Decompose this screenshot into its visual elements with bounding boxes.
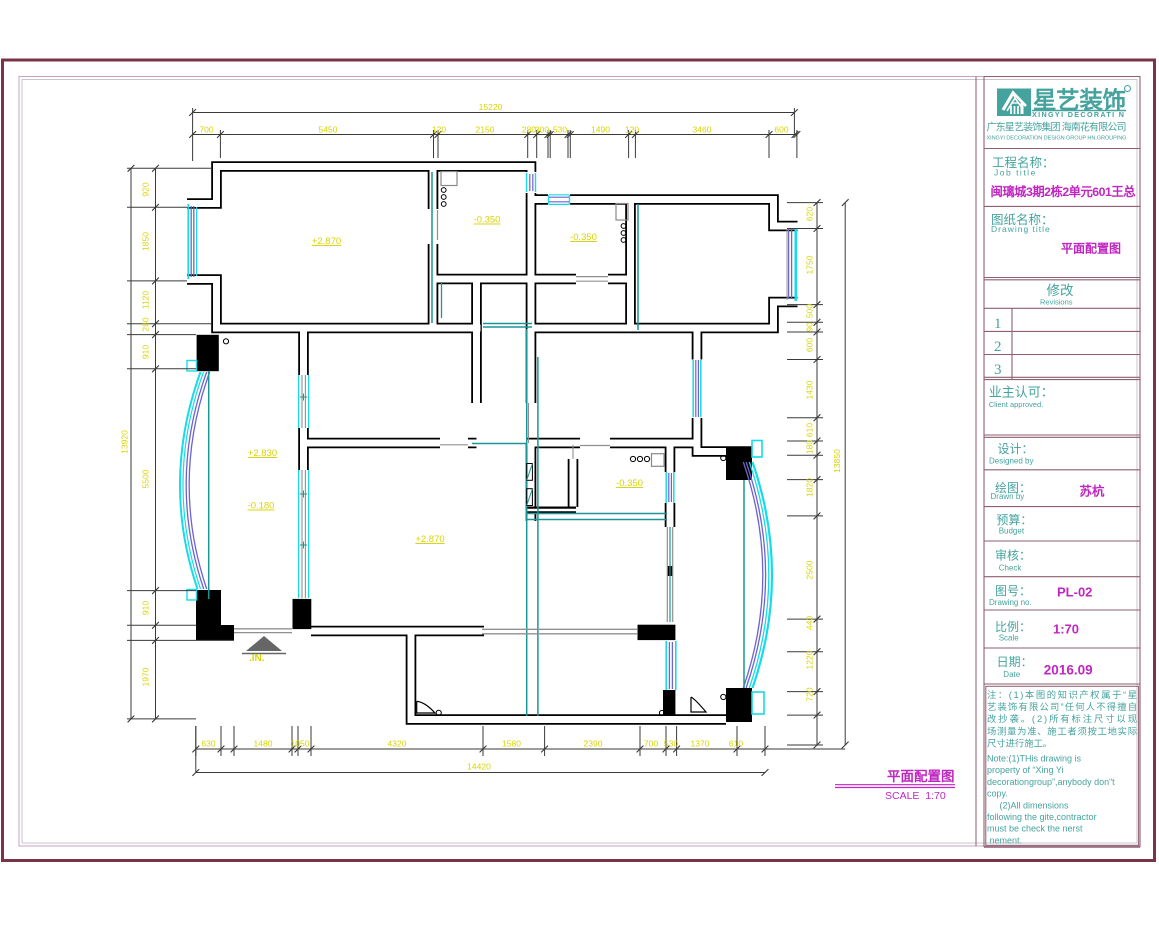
svg-text:13850: 13850 [832,449,842,473]
svg-text:审核：: 审核： [995,548,1031,563]
svg-text:广东星艺装饰集团 海南花有限公司: 广东星艺装饰集团 海南花有限公司 [987,121,1127,134]
svg-text:property of “Xing Yi: property of “Xing Yi [987,765,1064,775]
svg-text:5500: 5500 [141,469,151,488]
svg-text:苏杭: 苏杭 [1080,484,1106,499]
svg-text:610: 610 [729,739,743,749]
svg-text:Designed by: Designed by [989,456,1033,465]
svg-text:1850: 1850 [141,232,151,251]
svg-text:Drawing no.: Drawing no. [989,598,1032,607]
svg-text:530: 530 [553,124,567,134]
svg-text:910: 910 [141,601,151,615]
svg-text:3: 3 [994,362,1002,378]
svg-text:2500: 2500 [805,560,815,579]
svg-text:Scale: Scale [999,634,1020,643]
svg-text:XINGYI DECORATION DESIGN GROUP: XINGYI DECORATION DESIGN GROUP HN.GROUPI… [987,136,1127,142]
svg-text:Budget: Budget [999,527,1025,536]
svg-text:1820: 1820 [805,478,815,497]
svg-text:1480: 1480 [254,739,273,749]
svg-text:Client approved.: Client approved. [989,400,1044,409]
svg-text:620: 620 [805,207,815,221]
svg-text:日期：: 日期： [997,655,1033,669]
svg-text:700: 700 [199,124,213,134]
svg-text:14420: 14420 [467,762,491,772]
svg-text:Revisions: Revisions [1040,297,1073,306]
svg-text:+2.870: +2.870 [415,534,444,545]
svg-text:610: 610 [805,423,815,437]
svg-text:120: 120 [625,124,639,134]
svg-text:预算：: 预算： [996,512,1032,527]
svg-text:630: 630 [201,739,215,749]
svg-text:1120: 1120 [141,291,151,310]
svg-text:注：(1)本图的知识产权属于“星: 注：(1)本图的知识产权属于“星 [987,689,1137,700]
svg-text:2016.09: 2016.09 [1044,663,1093,678]
svg-text:920: 920 [141,182,151,196]
svg-text:280: 280 [141,317,151,331]
svg-text:5450: 5450 [319,124,338,134]
svg-text:1220: 1220 [805,650,815,669]
svg-text:-0.180: -0.180 [248,501,275,512]
svg-text:平面配置图: 平面配置图 [1061,241,1121,256]
svg-text:1: 1 [994,316,1002,332]
svg-text:1750: 1750 [805,255,815,274]
svg-text:600: 600 [774,124,788,134]
svg-text:nement.: nement. [987,835,1022,845]
svg-text:440: 440 [805,616,815,630]
svg-text:场测量为准、施工者须按工地实际: 场测量为准、施工者须按工地实际 [987,725,1137,736]
svg-text:尺寸进行施工。: 尺寸进行施工。 [987,737,1052,748]
svg-text:3460: 3460 [693,124,712,134]
svg-text:-0.350: -0.350 [616,478,643,489]
svg-text:1430: 1430 [805,380,815,399]
svg-text:1580: 1580 [502,739,521,749]
svg-text:Drawing title: Drawing title [991,224,1051,234]
svg-text:.IN.: .IN. [249,653,265,664]
svg-text:must be check the nerst: must be check the nerst [987,824,1083,834]
svg-text:SCALE 1:70: SCALE 1:70 [885,790,946,802]
svg-text:copy.: copy. [987,789,1008,799]
svg-text:Job title: Job title [994,168,1037,178]
svg-text:改抄袭。(2)所有标注尺寸以现: 改抄袭。(2)所有标注尺寸以现 [987,713,1137,724]
svg-text:1970: 1970 [141,667,151,686]
svg-text:业主认可：: 业主认可： [989,385,1054,400]
svg-text:90: 90 [805,322,815,332]
svg-text:2390: 2390 [584,739,603,749]
svg-text:4320: 4320 [388,739,407,749]
svg-text:艺装饰有限公司”任何人不得擅自: 艺装饰有限公司”任何人不得擅自 [987,701,1137,712]
svg-text:1:70: 1:70 [1053,622,1079,637]
svg-text:+2.830: +2.830 [248,448,277,459]
svg-text:1370: 1370 [691,739,710,749]
svg-text:(2)All dimensions: (2)All dimensions [987,800,1069,810]
svg-text:比例：: 比例： [995,620,1031,634]
svg-text:Note:(1)THis drawing is: Note:(1)THis drawing is [987,754,1082,764]
svg-text:1490: 1490 [591,124,610,134]
svg-text:300: 300 [535,124,549,134]
svg-text:180: 180 [805,440,815,454]
svg-text:720: 720 [805,687,815,701]
svg-text:Check: Check [999,564,1023,573]
svg-text:500: 500 [805,304,815,318]
svg-text:following the gite,contractor: following the gite,contractor [987,812,1097,822]
svg-text:Drawn by: Drawn by [991,492,1025,501]
svg-text:530: 530 [664,739,678,749]
svg-text:-0.350: -0.350 [474,215,501,226]
svg-text:-0.350: -0.350 [570,232,597,243]
svg-text:+2.870: +2.870 [312,236,341,247]
svg-text:修改: 修改 [1047,283,1075,298]
svg-text:1050: 1050 [291,739,310,749]
svg-text:XINGYI DECORATI N: XINGYI DECORATI N [1032,110,1124,119]
svg-text:闽璃城3期2栋2单元601王总: 闽璃城3期2栋2单元601王总 [991,184,1137,199]
svg-text:910: 910 [141,345,151,359]
svg-text:PL-02: PL-02 [1057,585,1092,600]
svg-text:平面配置图: 平面配置图 [887,769,955,784]
svg-text:700: 700 [644,739,658,749]
svg-text:decorationgroup”,anybody don“t: decorationgroup”,anybody don“t [987,777,1115,787]
svg-text:Date: Date [1003,670,1020,679]
svg-text:13920: 13920 [120,430,130,454]
svg-text:图号：: 图号： [995,584,1031,598]
svg-text:15220: 15220 [479,102,503,112]
svg-text:设计：: 设计： [998,442,1034,456]
svg-text:2: 2 [994,339,1002,355]
svg-text:600: 600 [805,338,815,352]
svg-text:120: 120 [432,124,446,134]
svg-text:2150: 2150 [476,124,495,134]
